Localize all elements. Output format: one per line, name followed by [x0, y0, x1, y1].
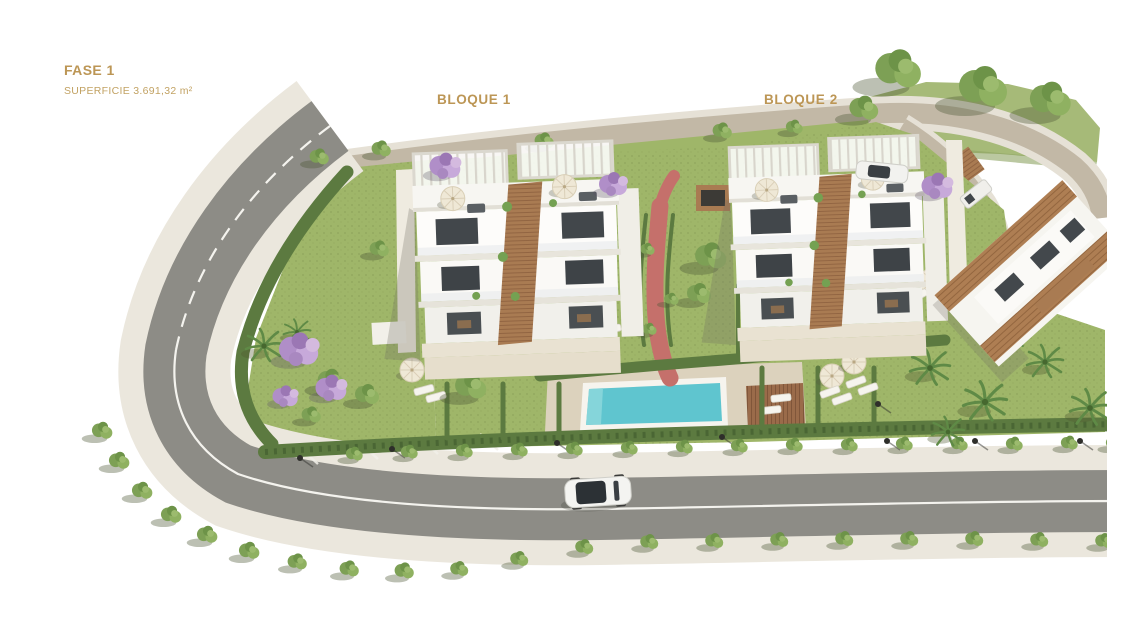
- pool: [586, 383, 722, 425]
- bloque-2-label: BLOQUE 2: [764, 92, 838, 107]
- crop-margin: [1107, 0, 1130, 635]
- fase-label: FASE 1: [64, 62, 115, 78]
- superficie-label: SUPERFICIE 3.691,32 m²: [64, 85, 193, 97]
- bloque-1-label: BLOQUE 1: [437, 92, 511, 107]
- site-plan-render: FASE 1 SUPERFICIE 3.691,32 m² BLOQUE 1 B…: [0, 0, 1130, 635]
